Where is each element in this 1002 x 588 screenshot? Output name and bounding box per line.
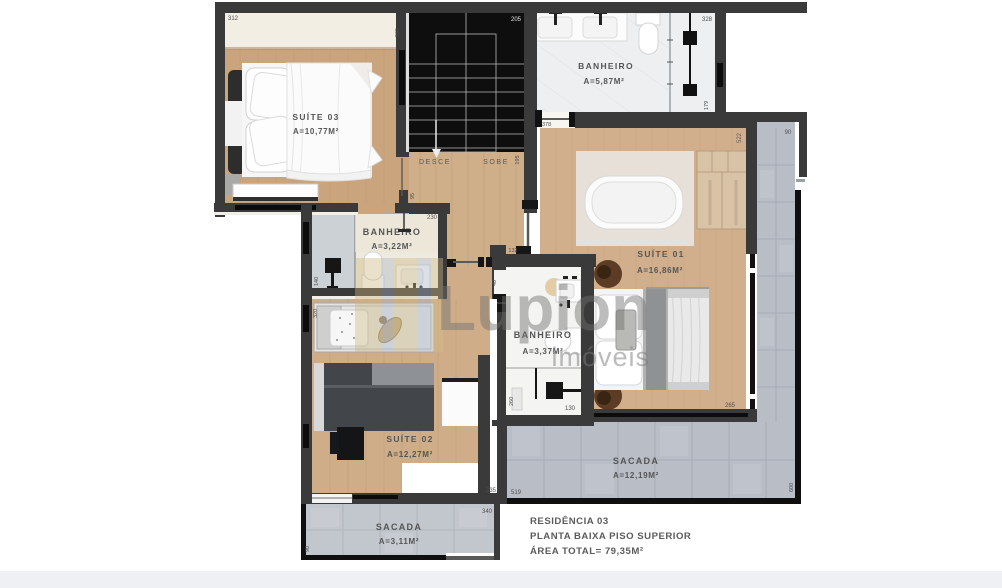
svg-text:132: 132 <box>508 248 517 254</box>
svg-text:378: 378 <box>542 122 551 128</box>
svg-text:522: 522 <box>737 132 743 143</box>
svg-text:90: 90 <box>305 546 311 552</box>
svg-text:SUÍTE 02: SUÍTE 02 <box>386 434 433 444</box>
svg-text:340: 340 <box>482 509 493 515</box>
svg-text:365: 365 <box>395 28 401 37</box>
svg-text:PLANTA BAIXA PISO SUPERIOR: PLANTA BAIXA PISO SUPERIOR <box>530 531 691 542</box>
svg-text:130: 130 <box>565 406 576 412</box>
svg-text:140: 140 <box>314 277 320 286</box>
svg-text:95: 95 <box>410 193 416 199</box>
svg-text:A=10,77M²: A=10,77M² <box>293 127 339 136</box>
svg-text:BANHEIRO: BANHEIRO <box>578 61 634 71</box>
svg-text:195: 195 <box>515 155 521 164</box>
svg-text:A=12,27M²: A=12,27M² <box>387 450 433 459</box>
svg-text:BANHEIRO: BANHEIRO <box>363 227 421 237</box>
svg-text:90: 90 <box>785 130 792 136</box>
svg-text:A=3,11M²: A=3,11M² <box>379 537 420 546</box>
svg-text:SACADA: SACADA <box>376 522 422 532</box>
svg-text:SACADA: SACADA <box>613 456 659 466</box>
svg-text:320: 320 <box>313 309 319 318</box>
svg-text:SUÍTE 03: SUÍTE 03 <box>292 112 339 122</box>
svg-text:265: 265 <box>725 403 736 409</box>
svg-text:RESIDÊNCIA 03: RESIDÊNCIA 03 <box>530 515 609 527</box>
svg-text:SUÍTE 01: SUÍTE 01 <box>637 249 684 259</box>
svg-text:imóveis: imóveis <box>551 342 650 372</box>
svg-text:519: 519 <box>511 490 522 496</box>
svg-text:SOBE: SOBE <box>483 159 509 166</box>
svg-text:ÁREA TOTAL= 79,35M²: ÁREA TOTAL= 79,35M² <box>530 545 644 557</box>
svg-text:A=12,19M²: A=12,19M² <box>613 471 659 480</box>
svg-text:328: 328 <box>702 17 713 23</box>
svg-text:230: 230 <box>427 215 438 221</box>
svg-text:312: 312 <box>228 16 239 22</box>
svg-text:A=5,87M²: A=5,87M² <box>584 77 625 86</box>
svg-text:335: 335 <box>486 488 497 494</box>
svg-text:A=3,22M²: A=3,22M² <box>372 242 413 251</box>
svg-text:260: 260 <box>509 397 515 406</box>
svg-text:205: 205 <box>511 17 522 23</box>
svg-text:DESCE: DESCE <box>419 159 451 166</box>
svg-text:600: 600 <box>789 483 795 492</box>
svg-text:Lupion: Lupion <box>437 272 650 344</box>
svg-text:179: 179 <box>704 101 710 110</box>
